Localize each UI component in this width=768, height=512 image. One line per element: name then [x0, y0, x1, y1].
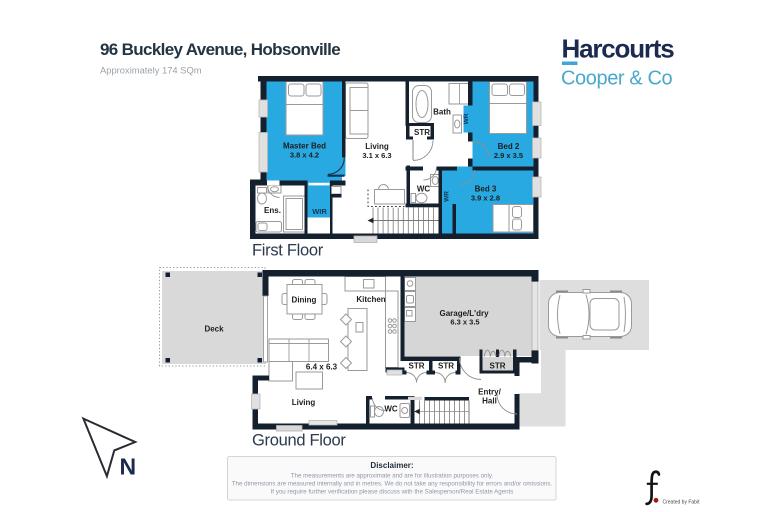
svg-text:Entry/: Entry/	[478, 388, 501, 397]
svg-text:WC: WC	[417, 185, 431, 194]
svg-text:3.8 x 4.2: 3.8 x 4.2	[290, 151, 319, 160]
svg-text:Kitchen: Kitchen	[356, 295, 385, 304]
svg-text:The dimensions are measured in: The dimensions are measured internally a…	[232, 481, 553, 488]
svg-text:Cooper & Co: Cooper & Co	[561, 68, 672, 90]
svg-text:96 Buckley Avenue, Hobsonville: 96 Buckley Avenue, Hobsonville	[100, 40, 340, 59]
svg-text:WR: WR	[444, 191, 451, 202]
svg-text:First Floor: First Floor	[252, 242, 324, 260]
svg-text:Bed 2: Bed 2	[498, 142, 520, 151]
svg-text:Living: Living	[365, 142, 389, 151]
svg-text:STR: STR	[409, 362, 425, 371]
svg-text:WR: WR	[463, 113, 470, 124]
svg-text:Ground Floor: Ground Floor	[252, 432, 346, 450]
svg-text:Bath: Bath	[433, 108, 451, 117]
svg-text:STR: STR	[490, 362, 506, 371]
svg-text:3.9 x 2.8: 3.9 x 2.8	[471, 194, 500, 203]
svg-text:WIR: WIR	[312, 207, 327, 216]
svg-text:Deck: Deck	[204, 325, 224, 334]
svg-text:If you require further verific: If you require further verification plea…	[271, 489, 514, 496]
svg-text:Approximately 174 SQm: Approximately 174 SQm	[100, 65, 202, 76]
svg-text:Disclaimer:: Disclaimer:	[370, 461, 413, 470]
svg-text:Harcourts: Harcourts	[562, 34, 675, 64]
svg-text:6.4 x 6.3: 6.4 x 6.3	[306, 363, 338, 372]
svg-text:Dining: Dining	[292, 296, 317, 305]
svg-text:2.9 x 3.5: 2.9 x 3.5	[494, 151, 523, 160]
svg-text:Master Bed: Master Bed	[283, 142, 326, 151]
svg-text:3.1 x 6.3: 3.1 x 6.3	[362, 151, 391, 160]
svg-text:STR: STR	[438, 362, 454, 371]
svg-text:Hall: Hall	[482, 397, 497, 406]
svg-text:Living: Living	[292, 398, 316, 407]
svg-text:WC: WC	[384, 405, 398, 414]
svg-text:STR: STR	[414, 128, 430, 137]
svg-text:N: N	[120, 454, 137, 480]
svg-text:6.3 x 3.5: 6.3 x 3.5	[450, 318, 479, 327]
svg-text:Ens.: Ens.	[264, 206, 281, 215]
svg-text:Created by Fabit: Created by Fabit	[663, 500, 701, 506]
svg-text:Bed 3: Bed 3	[475, 185, 497, 194]
svg-text:The measurements are approxima: The measurements are approximate and are…	[291, 473, 494, 480]
